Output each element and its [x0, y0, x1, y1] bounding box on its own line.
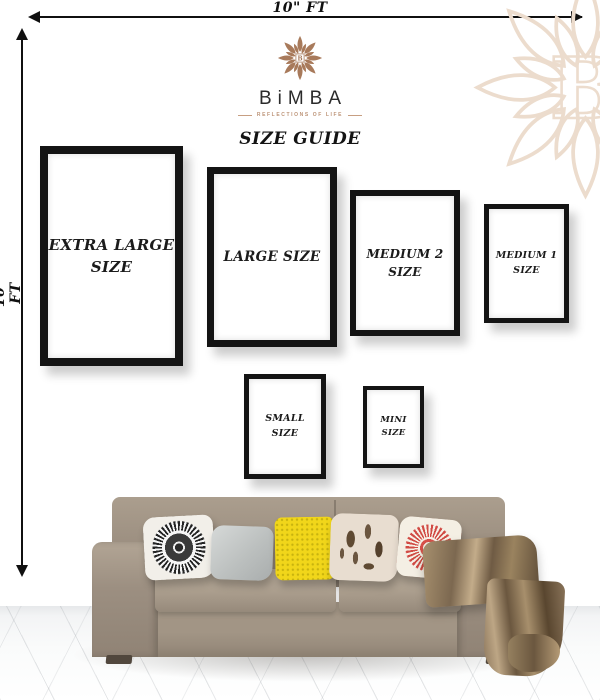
- logo-monogram: B: [297, 55, 302, 62]
- sofa-foot-left: [106, 655, 133, 664]
- brand-tagline: REFLECTIONS OF LIFE: [257, 112, 343, 118]
- frame-label: LARGE SIZE: [224, 247, 321, 267]
- pillow-black-mandala: [142, 514, 215, 581]
- frame-label: MINISIZE: [380, 414, 406, 440]
- frame-large: LARGE SIZE: [207, 167, 337, 347]
- sofa-base: [94, 602, 521, 657]
- frame-label: MEDIUM 1SIZE: [496, 249, 558, 278]
- arrowhead-left-icon: [28, 11, 40, 23]
- frame-medium-1: MEDIUM 1SIZE: [484, 204, 569, 323]
- brand-name: BiMBA: [0, 88, 600, 110]
- floor: [0, 606, 600, 700]
- brand-tagline-row: REFLECTIONS OF LIFE: [0, 112, 600, 118]
- frame-label: MEDIUM 2SIZE: [366, 245, 443, 281]
- frame-small: SMALLSIZE: [244, 374, 326, 479]
- frame-extra-large: EXTRA LARGESIZE: [40, 146, 183, 366]
- pillow-gray: [210, 525, 274, 581]
- tagline-rule-left: [238, 115, 252, 116]
- width-measure-label: 10" FT: [240, 0, 360, 16]
- throw-blanket-hang: [483, 578, 566, 678]
- sofa-backrest-seam: [334, 500, 336, 564]
- frame-label: SMALLSIZE: [265, 412, 305, 441]
- height-measure-label: 10" FT: [0, 267, 24, 319]
- sofa-armrest-left: [92, 542, 158, 657]
- sofa-shadow: [70, 628, 540, 682]
- sofa-armrest-right: [457, 540, 523, 657]
- pillow-red-mandala: [396, 515, 463, 580]
- size-guide-poster: B 10" FT 10" FT B BiMBA REFLECTIONS OF L…: [0, 0, 600, 700]
- frame-medium-2: MEDIUM 2SIZE: [350, 190, 460, 336]
- page-title: SIZE GUIDE: [0, 129, 600, 149]
- tagline-rule-right: [348, 115, 362, 116]
- frame-mini: MINISIZE: [363, 386, 424, 468]
- pillow-floral: [329, 513, 399, 582]
- sofa-seat-cushion-left: [155, 569, 336, 612]
- throw-blanket-top: [422, 534, 540, 608]
- arrowhead-down-icon: [16, 565, 28, 577]
- sofa-foot-right: [486, 655, 513, 664]
- sofa-seat-cushion-right: [339, 569, 461, 612]
- pillow-yellow: [274, 516, 335, 580]
- brand-logo-icon: B: [276, 34, 324, 82]
- throw-blanket-tail: [508, 634, 560, 672]
- frame-label: EXTRA LARGESIZE: [49, 234, 175, 279]
- brand-header: B BiMBA REFLECTIONS OF LIFE SIZE GUIDE: [0, 34, 600, 149]
- sofa-backrest: [112, 497, 505, 587]
